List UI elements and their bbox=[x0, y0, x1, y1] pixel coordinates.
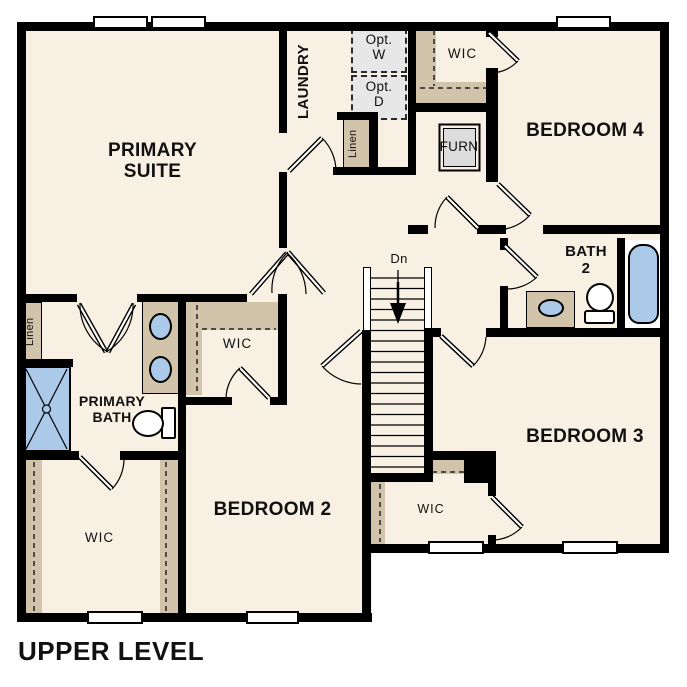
stair-down-arrow-head bbox=[390, 303, 406, 324]
floor-plan: PRIMARY SUITE LAUNDRY Opt. W Opt. D WIC … bbox=[0, 0, 687, 687]
label-linen-upper: Linen bbox=[347, 120, 366, 167]
door-swing-arcs bbox=[80, 61, 537, 540]
label-laundry: LAUNDRY bbox=[296, 36, 316, 128]
label-linen-hall: Linen bbox=[24, 306, 42, 358]
label-wic-bedroom3: WIC bbox=[406, 502, 456, 516]
shower-drain bbox=[43, 405, 51, 413]
label-bedroom4: BEDROOM 4 bbox=[505, 120, 665, 141]
label-furn: FURN bbox=[433, 139, 485, 154]
label-bedroom2: BEDROOM 2 bbox=[200, 499, 345, 520]
label-wic-bedroom2: WIC bbox=[72, 530, 127, 545]
label-primary-suite: PRIMARY SUITE bbox=[85, 140, 220, 183]
page-title: UPPER LEVEL bbox=[18, 636, 204, 667]
label-primary-bath: PRIMARY BATH bbox=[66, 394, 158, 425]
plan-linework bbox=[0, 0, 687, 687]
label-opt-w: Opt. W bbox=[364, 32, 394, 62]
label-bath2: BATH 2 bbox=[560, 244, 612, 278]
label-stairs-dn: Dn bbox=[385, 252, 413, 267]
label-bedroom3: BEDROOM 3 bbox=[505, 426, 665, 447]
label-wic-primary: WIC bbox=[210, 336, 265, 351]
label-wic-bedroom4: WIC bbox=[435, 46, 490, 61]
label-opt-d: Opt. D bbox=[364, 79, 394, 109]
